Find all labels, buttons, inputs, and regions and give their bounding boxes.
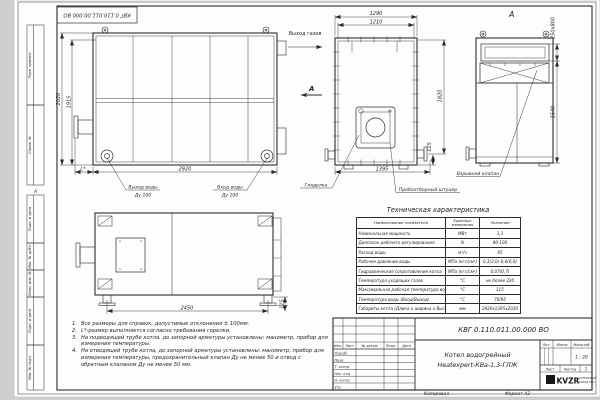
- flipped-designation: КВГ 0.110.011.00.000 ВО: [63, 12, 130, 18]
- spec-table: Наименование показателя Единицы измерени…: [356, 217, 521, 314]
- product-name-line1: Котел водогрейный: [444, 352, 510, 359]
- spec-row: Температура воды (Вход/Выход)°С70/95: [357, 295, 521, 304]
- frame-box-label: Подп. и дата: [28, 207, 32, 231]
- spec-value: 70/95: [480, 295, 521, 304]
- note-item: 3. На подводящей трубе котла, до запорно…: [72, 335, 328, 349]
- spec-unit: %: [446, 238, 480, 247]
- sig-nachotd: Нач. отд.: [335, 372, 351, 376]
- footer-format: Формат А3: [505, 391, 530, 397]
- frame-box-label: Инв. № подл.: [28, 355, 32, 380]
- spec-row: Температура уходящих газов°Сне более 220: [357, 276, 521, 285]
- spec-value: 45: [480, 248, 521, 257]
- spec-unit: °С: [446, 285, 480, 294]
- spec-unit: мм: [446, 304, 480, 313]
- water-outlet-dn: Ду 100: [134, 193, 152, 199]
- zone-mark: А: [33, 189, 37, 195]
- mass-label: Масса: [557, 343, 568, 347]
- spec-value: 2920х1395х2020: [480, 304, 521, 313]
- spec-param: Номинальная мощность: [357, 229, 446, 238]
- col-podp: Подп.: [386, 344, 396, 348]
- spec-param: Гидравлическое сопротивление котла: [357, 266, 446, 275]
- gas-outlet-label: Выход газов: [289, 31, 322, 37]
- scale-label: Масштаб: [573, 343, 589, 347]
- kvzr-logo-mark: [546, 375, 555, 384]
- engineering-drawing-sheet: Перв. примен. Справ. № Подп. и дата Инв.…: [0, 0, 600, 400]
- spec-param: Габариты котла (Длина х ширина х Высота): [357, 304, 446, 313]
- spec-value: 40-100: [480, 238, 521, 247]
- note-item: 2. L*-размер выполняется согласно требов…: [72, 328, 328, 335]
- section-arrow-label: А: [308, 85, 314, 93]
- note-item: 1. Все размеры для справок, допустимые о…: [72, 321, 328, 328]
- sig-nkontr: Н. контр.: [335, 379, 351, 383]
- notes-list: 1. Все размеры для справок, допустимые о…: [72, 321, 328, 368]
- org-name-line2: ЗАВОД РЭП: [579, 380, 595, 384]
- col-data: Дата: [401, 344, 411, 348]
- footer-copied: Копировал: [424, 391, 449, 397]
- spec-value: 0,3(3,0)-0,6(6,0): [480, 257, 521, 266]
- sheets-label: Листов: [563, 367, 577, 371]
- dim-115: 115: [280, 299, 286, 309]
- dim-l-star: L*: [80, 167, 86, 173]
- water-outlet-label: Выход воды: [128, 185, 158, 191]
- spec-header-row: Наименование показателя Единицы измерени…: [357, 218, 521, 229]
- spec-param: Температура воды (Вход/Выход): [357, 295, 446, 304]
- note-text: На подводящей трубе котла, до запорной а…: [81, 335, 328, 349]
- sig-tkontr: Т. контр.: [335, 365, 351, 369]
- spec-table-title: Техническая характеристика: [356, 206, 520, 214]
- spec-value: 0,07(0,7): [480, 266, 521, 275]
- note-number: 2.: [72, 328, 81, 335]
- spec-value: 1,3: [480, 229, 521, 238]
- spec-row: Максимальная рабочая температура воды°С1…: [357, 285, 521, 294]
- spec-col-units: Единицы измерения: [446, 218, 480, 229]
- lit-label: Лит.: [542, 343, 551, 347]
- note-text: На отводящей трубе котла, до запорной ар…: [81, 348, 328, 368]
- peephole-label: Гляделка: [305, 183, 328, 189]
- spec-unit: м³/ч: [446, 248, 480, 257]
- spec-unit: °С: [446, 276, 480, 285]
- spec-unit: МПа (кгс/см²): [446, 257, 480, 266]
- sheet-label: Лист: [545, 367, 556, 371]
- dim-1820: 1820: [438, 90, 444, 103]
- col-docum: № докум.: [361, 344, 379, 348]
- spec-row: Диапазон рабочего регулирования%40-100: [357, 238, 521, 247]
- frame-box-label: Перв. примен.: [28, 52, 32, 79]
- dim-1290: 1290: [370, 11, 383, 17]
- product-name-line2: Heatexpert-КВа-1,3-ГЛЖ: [438, 361, 518, 369]
- frame-box-label: Инв. № дубл.: [28, 244, 32, 269]
- spec-value: 115: [480, 285, 521, 294]
- spec-param: Расход воды: [357, 248, 446, 257]
- spec-col-name: Наименование показателя: [357, 218, 446, 229]
- spec-row: Рабочее давление водыМПа (кгс/см²)0,3(3,…: [357, 257, 521, 266]
- note-text: Все размеры для справок, допустимые откл…: [81, 321, 328, 328]
- water-inlet-dn: Ду 100: [221, 193, 239, 199]
- spec-unit: МПа (кгс/см²): [446, 266, 480, 275]
- spec-unit: МВт: [446, 229, 480, 238]
- spec-row: Гидравлическое сопротивление котлаМПа (к…: [357, 266, 521, 275]
- note-text: L*-размер выполняется согласно требовани…: [81, 328, 328, 335]
- frame-box-label: Справ. №: [28, 136, 32, 154]
- section-title: А: [508, 10, 514, 19]
- note-item: 4. На отводящей трубе котла, до запорной…: [72, 348, 328, 368]
- sig-razrab: Разраб.: [335, 352, 348, 356]
- spec-param: Температура уходящих газов: [357, 276, 446, 285]
- dim-1395: 1395: [376, 167, 389, 173]
- spec-row: Габариты котла (Длина х ширина х Высота)…: [357, 304, 521, 313]
- sig-prov: Пров.: [335, 358, 345, 362]
- dim-2450: 2450: [181, 306, 194, 312]
- spec-param: Максимальная рабочая температура воды: [357, 285, 446, 294]
- note-number: 1.: [72, 321, 81, 328]
- spec-section: Техническая характеристика Наименование …: [356, 206, 520, 314]
- dim-2020: 2020: [56, 93, 62, 106]
- kvzr-logo-text: KVZR: [557, 377, 580, 386]
- explosion-valve-label: Взрывной клапан: [457, 171, 499, 177]
- col-izm: Изм.: [334, 344, 342, 348]
- dim-125: 125: [427, 142, 433, 152]
- sampling-fitting-label: Пробоотборный штуцер: [399, 187, 457, 193]
- dim-1915: 1915: [67, 96, 73, 109]
- col-list: Лист: [344, 344, 355, 348]
- water-inlet-label: Вход воды: [217, 185, 243, 191]
- spec-value: не более 220: [480, 276, 521, 285]
- spec-param: Рабочее давление воды: [357, 257, 446, 266]
- spec-row: Номинальная мощностьМВт1,3: [357, 229, 521, 238]
- dim-250x800: 250х800: [551, 17, 557, 39]
- spec-col-value: Значение: [480, 218, 521, 229]
- dim-1210: 1210: [370, 20, 383, 26]
- spec-unit: °С: [446, 295, 480, 304]
- frame-box-label: Подп. и дата: [28, 309, 32, 333]
- drawing-designation: КВГ 0.110.011.00.000 ВО: [458, 326, 549, 334]
- scale-value: 1 : 20: [575, 355, 588, 361]
- note-number: 4.: [72, 348, 81, 368]
- frame-box-label: Взам. инв. №: [28, 271, 32, 296]
- sig-utv: Утв.: [335, 386, 342, 390]
- spec-param: Диапазон рабочего регулирования: [357, 238, 446, 247]
- dim-2920: 2920: [179, 167, 192, 173]
- note-number: 3.: [72, 335, 81, 349]
- spec-row: Расход водым³/ч45: [357, 248, 521, 257]
- dim-1540: 1540: [551, 106, 557, 119]
- sheets-value: 1: [585, 367, 588, 372]
